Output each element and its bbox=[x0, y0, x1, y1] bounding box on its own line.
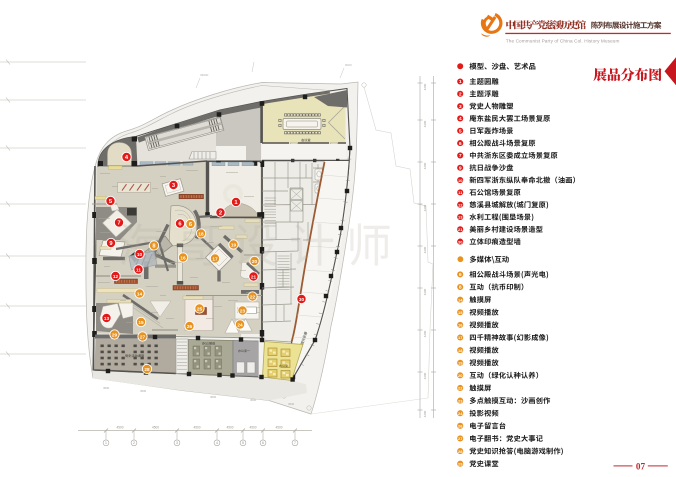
svg-text:3: 3 bbox=[459, 104, 462, 110]
svg-text:19: 19 bbox=[231, 243, 237, 248]
svg-text:4: 4 bbox=[216, 441, 218, 445]
svg-text:23: 23 bbox=[240, 309, 246, 314]
svg-text:4500: 4500 bbox=[275, 425, 282, 429]
svg-text:14: 14 bbox=[137, 292, 143, 297]
svg-text:3: 3 bbox=[176, 441, 178, 445]
svg-text:21: 21 bbox=[458, 227, 463, 232]
svg-text:4: 4 bbox=[459, 116, 462, 122]
svg-text:4500: 4500 bbox=[152, 425, 159, 429]
svg-text:15: 15 bbox=[458, 310, 463, 315]
svg-text:4200: 4200 bbox=[423, 204, 427, 211]
svg-text:10: 10 bbox=[458, 178, 463, 183]
svg-text:20: 20 bbox=[458, 373, 463, 378]
svg-text:4500: 4500 bbox=[210, 395, 217, 399]
svg-text:11: 11 bbox=[136, 268, 141, 273]
svg-text:9: 9 bbox=[459, 165, 462, 171]
svg-text:6: 6 bbox=[262, 441, 264, 445]
svg-text:2: 2 bbox=[459, 92, 462, 98]
svg-text:7: 7 bbox=[294, 441, 296, 445]
svg-text:2: 2 bbox=[133, 441, 135, 445]
svg-text:28: 28 bbox=[144, 367, 150, 372]
svg-text:26: 26 bbox=[187, 324, 193, 329]
svg-text:27: 27 bbox=[140, 335, 146, 340]
svg-text:5: 5 bbox=[242, 441, 244, 445]
svg-text:6: 6 bbox=[459, 272, 462, 278]
svg-text:12: 12 bbox=[458, 202, 463, 207]
svg-text:23: 23 bbox=[458, 398, 463, 403]
svg-text:16: 16 bbox=[458, 323, 463, 328]
svg-text:4200: 4200 bbox=[423, 288, 427, 295]
svg-text:4200: 4200 bbox=[423, 330, 427, 337]
svg-text:4200: 4200 bbox=[423, 246, 427, 253]
svg-text:4200: 4200 bbox=[423, 372, 427, 379]
svg-text:29: 29 bbox=[112, 333, 118, 338]
svg-text:7: 7 bbox=[459, 153, 462, 159]
svg-text:14: 14 bbox=[458, 297, 463, 302]
svg-text:30: 30 bbox=[458, 239, 463, 244]
svg-text:4500: 4500 bbox=[226, 425, 233, 429]
svg-text:4500: 4500 bbox=[193, 425, 200, 429]
svg-text:22: 22 bbox=[458, 386, 463, 391]
svg-text:24: 24 bbox=[237, 323, 243, 328]
svg-text:25: 25 bbox=[197, 307, 203, 312]
svg-text:18: 18 bbox=[198, 232, 204, 237]
svg-text:17: 17 bbox=[212, 257, 218, 262]
svg-text:28: 28 bbox=[458, 449, 463, 454]
svg-text:18: 18 bbox=[458, 348, 463, 353]
svg-text:4200: 4200 bbox=[423, 410, 427, 417]
svg-text:13: 13 bbox=[104, 316, 110, 321]
svg-text:26: 26 bbox=[458, 424, 463, 429]
svg-text:1: 1 bbox=[105, 441, 107, 445]
svg-text:17: 17 bbox=[458, 335, 463, 340]
svg-text:7: 7 bbox=[117, 221, 120, 227]
svg-text:4500: 4500 bbox=[140, 389, 147, 393]
svg-text:07: 07 bbox=[636, 461, 646, 471]
svg-text:30: 30 bbox=[299, 297, 305, 302]
svg-text:16: 16 bbox=[180, 256, 186, 261]
svg-text:6: 6 bbox=[459, 141, 462, 147]
svg-text:4500: 4500 bbox=[116, 425, 123, 429]
svg-text:1: 1 bbox=[459, 79, 462, 85]
svg-text:19: 19 bbox=[458, 360, 463, 365]
svg-text:4200: 4200 bbox=[423, 162, 427, 169]
svg-text:8: 8 bbox=[459, 285, 462, 291]
svg-text:39000: 39000 bbox=[200, 73, 209, 77]
svg-text:27: 27 bbox=[458, 436, 463, 441]
svg-text:4500: 4500 bbox=[250, 398, 257, 402]
svg-text:4200: 4200 bbox=[423, 83, 427, 90]
svg-text:12: 12 bbox=[113, 274, 119, 279]
svg-text:21: 21 bbox=[251, 275, 257, 280]
svg-text:2: 2 bbox=[219, 211, 222, 217]
svg-text:4200: 4200 bbox=[423, 120, 427, 127]
svg-text:4500: 4500 bbox=[288, 402, 295, 406]
svg-text:4500: 4500 bbox=[103, 386, 110, 390]
svg-text:24: 24 bbox=[458, 411, 463, 416]
svg-text:29: 29 bbox=[458, 461, 463, 466]
svg-text:20: 20 bbox=[252, 259, 258, 264]
svg-text:4500: 4500 bbox=[249, 425, 256, 429]
svg-text:22: 22 bbox=[250, 295, 256, 300]
svg-text:5: 5 bbox=[459, 128, 462, 134]
svg-text:9000: 9000 bbox=[345, 63, 352, 67]
svg-text:13: 13 bbox=[458, 215, 463, 220]
svg-text:15: 15 bbox=[138, 320, 144, 325]
svg-text:The Communist Party of China C: The Communist Party of China Col. Histor… bbox=[506, 39, 620, 44]
svg-text:10: 10 bbox=[137, 252, 143, 257]
